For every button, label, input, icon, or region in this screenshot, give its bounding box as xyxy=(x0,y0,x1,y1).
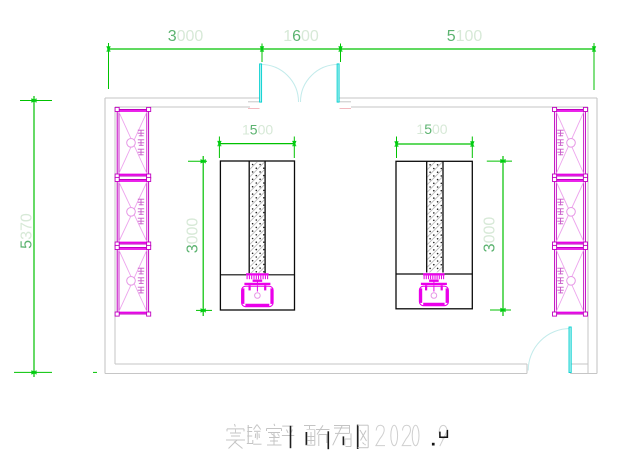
svg-text:3000: 3000 xyxy=(184,218,201,254)
svg-text:1600: 1600 xyxy=(283,28,319,45)
svg-text:3000: 3000 xyxy=(168,28,204,45)
svg-text:1500: 1500 xyxy=(416,121,447,137)
svg-text:5370: 5370 xyxy=(18,213,35,249)
svg-text:1500: 1500 xyxy=(242,122,273,138)
svg-text:5100: 5100 xyxy=(447,28,483,45)
svg-text:3000: 3000 xyxy=(481,217,498,253)
